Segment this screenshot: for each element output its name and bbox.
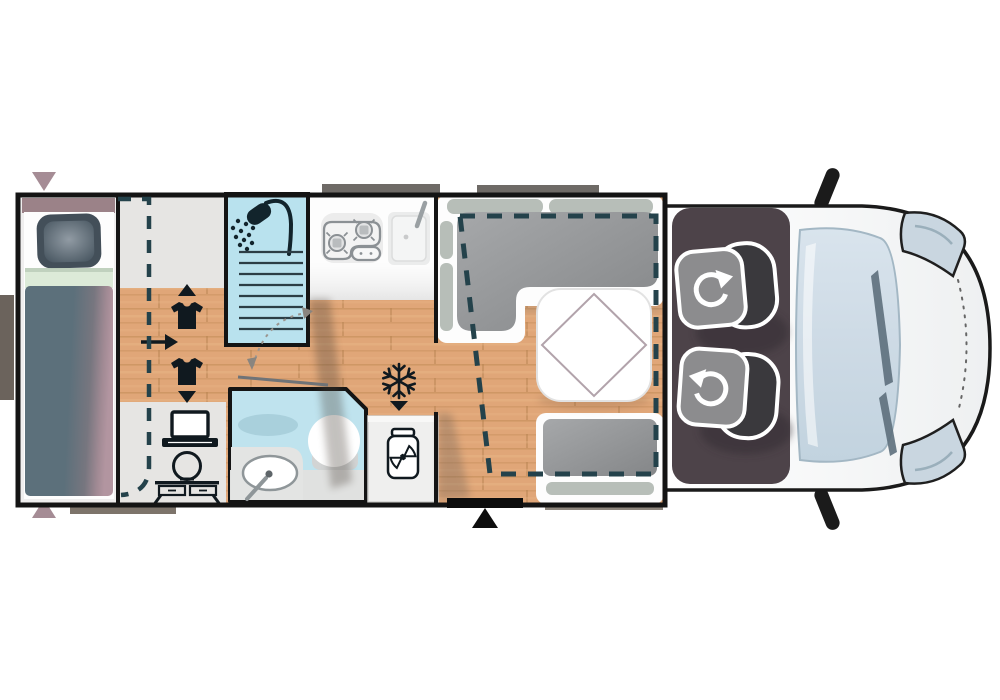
floorplan-canvas [0, 0, 1000, 700]
headboard [22, 198, 115, 213]
shower-room [226, 194, 308, 345]
single-bed [22, 198, 115, 499]
driver-swivel-seat [674, 241, 779, 333]
seat-cushion [675, 248, 747, 329]
kitchen [310, 194, 436, 300]
sofa-back-cushion [447, 199, 543, 214]
blanket-edge [25, 268, 113, 272]
kitchen-sink-icon [388, 203, 430, 265]
pantry-jar-icon [388, 429, 418, 478]
water-shading [238, 414, 298, 436]
seat-cushion [677, 347, 748, 427]
sofa-side-cushion [440, 221, 453, 259]
entrance-door-marker [447, 498, 523, 508]
entrance-triangle [472, 508, 498, 528]
mirror-bottom-icon [812, 486, 841, 532]
vehicle-cab [664, 166, 990, 532]
bench-back-cushion [546, 482, 654, 495]
pantry-cabinet [368, 416, 438, 502]
hob-icon [321, 213, 383, 263]
exterior-hatch-left [0, 295, 14, 400]
sofa-side-cushion [440, 263, 453, 331]
cabinet-top-edge [368, 416, 438, 422]
sofa-back-cushion [549, 199, 653, 214]
counter-shading [310, 262, 436, 300]
blanket-fold [25, 272, 113, 288]
wardrobe-floor [118, 196, 226, 288]
bench-cushion [543, 419, 657, 476]
dinette-table [537, 289, 651, 401]
duvet [25, 286, 113, 496]
pillow-center [43, 220, 94, 262]
marker-triangle-top [32, 172, 56, 191]
laptop-icon [162, 412, 218, 447]
